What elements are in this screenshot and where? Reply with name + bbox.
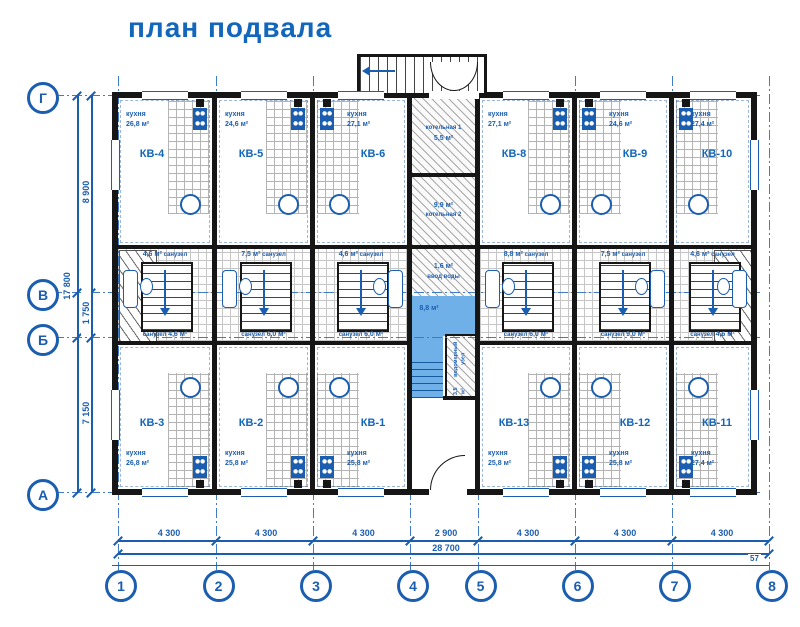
water-inlet-area: 1,6 м² bbox=[434, 263, 453, 271]
sink-icon bbox=[329, 377, 350, 398]
stair-arrow-head bbox=[160, 308, 170, 316]
stair-arrow-stem bbox=[622, 270, 624, 310]
bathroom-name: санузел bbox=[262, 252, 286, 258]
bathroom-name: санузел bbox=[339, 332, 363, 338]
axis-bubble-col-4: 4 bbox=[397, 570, 429, 602]
toilet-icon bbox=[717, 278, 730, 295]
axis-bubble-col-7: 7 bbox=[659, 570, 691, 602]
sink-icon bbox=[329, 194, 350, 215]
window-right-1 bbox=[750, 140, 759, 190]
stove-icon bbox=[582, 108, 596, 130]
bathroom-area: 4,6 м² bbox=[716, 331, 735, 338]
sink-unit-icon bbox=[556, 99, 564, 107]
dim-label-segment-5: 4 300 bbox=[508, 528, 548, 538]
apartment-5-room-label: кухня bbox=[609, 110, 661, 119]
stairwell-wall bbox=[443, 396, 475, 400]
apartment-10-room-label: кухня bbox=[488, 449, 540, 458]
stove-icon bbox=[291, 456, 305, 478]
bathroom-name: санузел bbox=[622, 252, 646, 258]
sink-unit-icon bbox=[323, 99, 331, 107]
boiler-room-1-label: котельная 1 bbox=[426, 125, 462, 133]
boiler-room-2-label: котельная 2 bbox=[426, 212, 462, 220]
sink-unit-icon bbox=[682, 99, 690, 107]
apartment-7-room-area: 26,8 м² bbox=[126, 459, 178, 468]
bathtub-icon bbox=[732, 270, 747, 308]
sink-icon bbox=[591, 377, 612, 398]
apartment-3-room-area: 27,1 м² bbox=[347, 120, 399, 129]
unit-stair-5 bbox=[599, 262, 651, 332]
sink-icon bbox=[688, 377, 709, 398]
sink-icon bbox=[688, 194, 709, 215]
boiler-room-2-area: 9,9 м² bbox=[434, 202, 453, 210]
bathroom-label-bottom-1: санузел 4,6 м² bbox=[118, 331, 212, 340]
window-top-4 bbox=[503, 91, 549, 100]
bathroom-label-top-4: 8,8 м² санузел bbox=[480, 251, 572, 260]
apartment-8-id: КВ-2 bbox=[221, 417, 281, 429]
bathroom-label-top-6: 4,6 м² санузел bbox=[674, 251, 751, 260]
bathtub-icon bbox=[222, 270, 237, 308]
apartment-9-room-area: 25,8 м² bbox=[347, 459, 399, 468]
stair-arrow-stem bbox=[712, 270, 714, 310]
axis-bubble-col-3: 3 bbox=[300, 570, 332, 602]
dim-label-left-1: 8 900 bbox=[81, 170, 91, 214]
stair-arrow-stem bbox=[164, 270, 166, 310]
party-wall-6 bbox=[669, 92, 674, 495]
stair-arrow-head bbox=[259, 308, 269, 316]
party-wall-2 bbox=[310, 92, 315, 495]
bathroom-label-top-2: 7,5 м² санузел bbox=[217, 251, 310, 260]
dim-label-segment-3: 4 300 bbox=[344, 528, 384, 538]
sink-icon bbox=[180, 377, 201, 398]
window-top-1 bbox=[142, 91, 188, 100]
axis-bubble-col-2: 2 bbox=[203, 570, 235, 602]
apartment-7-room-label: кухня bbox=[126, 449, 178, 458]
entrance-arrow-head bbox=[362, 66, 370, 76]
window-bottom-4 bbox=[503, 488, 549, 497]
bathroom-name: санузел bbox=[360, 252, 384, 258]
apartment-8-room-label: кухня bbox=[225, 449, 277, 458]
window-top-5 bbox=[600, 91, 646, 100]
apartment-12-room-label: кухня bbox=[691, 449, 743, 458]
stove-icon bbox=[320, 108, 334, 130]
apartment-3-id: КВ-6 bbox=[343, 148, 403, 160]
apartment-10-id: КВ-13 bbox=[484, 417, 544, 429]
apartment-4-room-label: кухня bbox=[488, 110, 540, 119]
sink-unit-icon bbox=[196, 480, 204, 488]
bathroom-label-bottom-5: санузел 9,0 м² bbox=[577, 331, 669, 340]
sink-unit-icon bbox=[196, 99, 204, 107]
stove-icon bbox=[320, 456, 334, 478]
bathroom-area: 9,0 м² bbox=[626, 331, 645, 338]
window-right-2 bbox=[750, 390, 759, 440]
axis-bubble-row-В: В bbox=[27, 279, 59, 311]
toilet-icon bbox=[239, 278, 252, 295]
sink-icon bbox=[180, 194, 201, 215]
apartment-5-id: КВ-9 bbox=[605, 148, 665, 160]
bathroom-name: санузел bbox=[601, 332, 625, 338]
unit-stair-2 bbox=[240, 262, 292, 332]
bathroom-label-bottom-4: санузел 6,0 м² bbox=[480, 331, 572, 340]
apartment-12-room-area: 27,4 м² bbox=[691, 459, 743, 468]
stair-arrow-stem bbox=[525, 270, 527, 310]
dim-label-segment-2: 4 300 bbox=[246, 528, 286, 538]
apartment-10-room-area: 25,8 м² bbox=[488, 459, 540, 468]
sink-unit-icon bbox=[294, 480, 302, 488]
bathroom-area: 7,5 м² bbox=[601, 251, 620, 258]
core-wall-upper bbox=[118, 245, 751, 249]
door-arc-icon bbox=[430, 455, 465, 490]
dim-label-segment-4: 2 900 bbox=[426, 528, 466, 538]
stair-arrow-head bbox=[521, 308, 531, 316]
apartment-9-room-label: кухня bbox=[347, 449, 399, 458]
sink-icon bbox=[540, 194, 561, 215]
bathroom-area: 4,6 м² bbox=[690, 251, 709, 258]
axis-line-col-8 bbox=[769, 76, 770, 570]
apartment-8-room-area: 25,8 м² bbox=[225, 459, 277, 468]
window-top-2 bbox=[241, 91, 287, 100]
sink-icon bbox=[591, 194, 612, 215]
bathroom-label-top-5: 7,5 м² санузел bbox=[577, 251, 669, 260]
entrance-arrow-stem bbox=[369, 70, 395, 72]
stove-icon bbox=[291, 108, 305, 130]
bathroom-name: санузел bbox=[164, 252, 188, 258]
hall-area-label: 8,8 м² bbox=[414, 304, 444, 313]
bathroom-area: 7,5 м² bbox=[241, 251, 260, 258]
apartment-11-room-area: 25,8 м² bbox=[609, 459, 661, 468]
page-title: план подвала bbox=[128, 12, 332, 44]
bathroom-area: 4,6 м² bbox=[143, 251, 162, 258]
bathtub-icon bbox=[123, 270, 138, 308]
party-wall-4 bbox=[475, 92, 480, 495]
sink-unit-icon bbox=[556, 480, 564, 488]
axis-bubble-row-Б: Б bbox=[27, 324, 59, 356]
bathtub-icon bbox=[650, 270, 665, 308]
apartment-6-room-area: 27,4 м² bbox=[691, 120, 743, 129]
window-bottom-5 bbox=[600, 488, 646, 497]
axis-bubble-col-8: 8 bbox=[756, 570, 788, 602]
dim-label-left-total: 17 800 bbox=[62, 263, 72, 309]
sink-unit-icon bbox=[294, 99, 302, 107]
bathroom-area: 4,6 м² bbox=[339, 251, 358, 258]
apartment-6-id: КВ-10 bbox=[687, 148, 747, 160]
stove-icon bbox=[553, 456, 567, 478]
stove-icon bbox=[582, 456, 596, 478]
stair-arrow-head bbox=[618, 308, 628, 316]
window-top-3 bbox=[338, 91, 384, 100]
sink-icon bbox=[540, 377, 561, 398]
bathroom-area: 6,0 м² bbox=[267, 331, 286, 338]
bathroom-name: санузел bbox=[711, 252, 735, 258]
stair-arrow-stem bbox=[263, 270, 265, 310]
bathroom-name: санузел bbox=[143, 332, 167, 338]
stove-icon bbox=[193, 456, 207, 478]
apartment-9-id: КВ-1 bbox=[343, 417, 403, 429]
toilet-icon bbox=[373, 278, 386, 295]
dim-label-segment-6: 4 300 bbox=[605, 528, 645, 538]
bathroom-label-top-1: 4,6 м² санузел bbox=[118, 251, 212, 260]
stove-icon bbox=[553, 108, 567, 130]
axis-bubble-row-Г: Г bbox=[27, 82, 59, 114]
stove-icon bbox=[193, 108, 207, 130]
water-meter-label: водомерный узел bbox=[453, 336, 468, 382]
party-wall-1 bbox=[212, 92, 217, 495]
apartment-6-room-label: кухня bbox=[691, 110, 743, 119]
apartment-2-id: КВ-5 bbox=[221, 148, 281, 160]
window-bottom-3 bbox=[338, 488, 384, 497]
water-inlet-label: ввод воды bbox=[427, 274, 460, 282]
sink-unit-icon bbox=[323, 480, 331, 488]
apartment-11-room-label: кухня bbox=[609, 449, 661, 458]
bathroom-area: 4,6 м² bbox=[168, 331, 187, 338]
party-wall-3 bbox=[407, 92, 412, 495]
toilet-icon bbox=[140, 278, 153, 295]
bathroom-name: санузел bbox=[690, 332, 714, 338]
bathroom-label-bottom-3: санузел 6,0 м² bbox=[315, 331, 407, 340]
sink-unit-icon bbox=[682, 480, 690, 488]
bathroom-label-bottom-6: санузел 4,6 м² bbox=[674, 331, 751, 340]
toilet-icon bbox=[635, 278, 648, 295]
axis-bubble-col-5: 5 bbox=[465, 570, 497, 602]
apartment-3-room-label: кухня bbox=[347, 110, 399, 119]
bathroom-name: санузел bbox=[241, 332, 265, 338]
apartment-1-id: КВ-4 bbox=[122, 148, 182, 160]
bathroom-area: 6,0 м² bbox=[529, 331, 548, 338]
door-opening-top bbox=[429, 91, 479, 99]
party-wall-5 bbox=[572, 92, 577, 495]
apartment-4-id: КВ-8 bbox=[484, 148, 544, 160]
apartment-4-room-area: 27,1 м² bbox=[488, 120, 540, 129]
sink-unit-icon bbox=[585, 480, 593, 488]
window-bottom-6 bbox=[690, 488, 736, 497]
stair-arrow-head bbox=[356, 308, 366, 316]
bathtub-icon bbox=[485, 270, 500, 308]
sink-icon bbox=[278, 194, 299, 215]
apartment-1-room-label: кухня bbox=[126, 110, 178, 119]
bathroom-label-top-3: 4,6 м² санузел bbox=[315, 251, 407, 260]
boiler-room-1-area: 5,5 м² bbox=[434, 135, 453, 143]
dim-line-total bbox=[118, 553, 769, 555]
bathroom-area: 8,8 м² bbox=[504, 251, 523, 258]
window-left-2 bbox=[111, 390, 120, 440]
apartment-1-room-area: 26,8 м² bbox=[126, 120, 178, 129]
basement-floor-plan: котельная 1 5,5 м² 9,9 м² котельная 2 1,… bbox=[0, 0, 800, 627]
axis-bubble-row-А: А bbox=[27, 479, 59, 511]
bathroom-label-bottom-2: санузел 6,0 м² bbox=[217, 331, 310, 340]
dim-label-left-2: 1 750 bbox=[81, 291, 91, 335]
apartment-5-room-area: 24,6 м² bbox=[609, 120, 661, 129]
apartment-7-id: КВ-3 bbox=[122, 417, 182, 429]
dim-label-left-3: 7 150 bbox=[81, 391, 91, 435]
dim-label-total: 28 700 bbox=[423, 543, 469, 553]
sink-unit-icon bbox=[585, 99, 593, 107]
water-meter-room: водомерный узел 3,5 м² bbox=[445, 334, 477, 400]
bathroom-name: санузел bbox=[525, 252, 549, 258]
dim-label-segment-7: 4 300 bbox=[702, 528, 742, 538]
unit-stair-1 bbox=[141, 262, 193, 332]
dim-label-note: 57 bbox=[748, 554, 761, 563]
window-bottom-1 bbox=[142, 488, 188, 497]
apartment-12-id: КВ-11 bbox=[687, 417, 747, 429]
bathroom-area: 6,0 м² bbox=[364, 331, 383, 338]
unit-stair-4 bbox=[502, 262, 554, 332]
core-wall-lower-left bbox=[118, 341, 407, 345]
apartment-2-room-label: кухня bbox=[225, 110, 277, 119]
water-inlet-room: 1,6 м² ввод воды bbox=[412, 249, 475, 296]
dim-label-segment-1: 4 300 bbox=[149, 528, 189, 538]
drawing-sheet: план подвала котельная 1 5,5 м² 9,9 м² к… bbox=[0, 0, 800, 627]
toilet-icon bbox=[502, 278, 515, 295]
bathroom-name: санузел bbox=[504, 332, 528, 338]
sink-icon bbox=[278, 377, 299, 398]
apartment-2-room-area: 24,6 м² bbox=[225, 120, 277, 129]
window-top-6 bbox=[690, 91, 736, 100]
apartment-11-id: КВ-12 bbox=[605, 417, 665, 429]
window-bottom-2 bbox=[241, 488, 287, 497]
dim-line-outer bbox=[112, 565, 769, 566]
axis-bubble-col-6: 6 bbox=[562, 570, 594, 602]
core-wall-lower-right bbox=[480, 341, 751, 345]
window-left-1 bbox=[111, 140, 120, 190]
boiler-room-2: 9,9 м² котельная 2 bbox=[412, 177, 475, 245]
stair-arrow-head bbox=[708, 308, 718, 316]
stairwell-hall-fill bbox=[412, 296, 475, 336]
boiler-room-1: котельная 1 5,5 м² bbox=[412, 96, 475, 177]
stairwell-treads bbox=[412, 358, 443, 398]
unit-stair-3 bbox=[337, 262, 389, 332]
axis-bubble-col-1: 1 bbox=[105, 570, 137, 602]
bathtub-icon bbox=[388, 270, 403, 308]
stair-arrow-stem bbox=[360, 270, 362, 310]
